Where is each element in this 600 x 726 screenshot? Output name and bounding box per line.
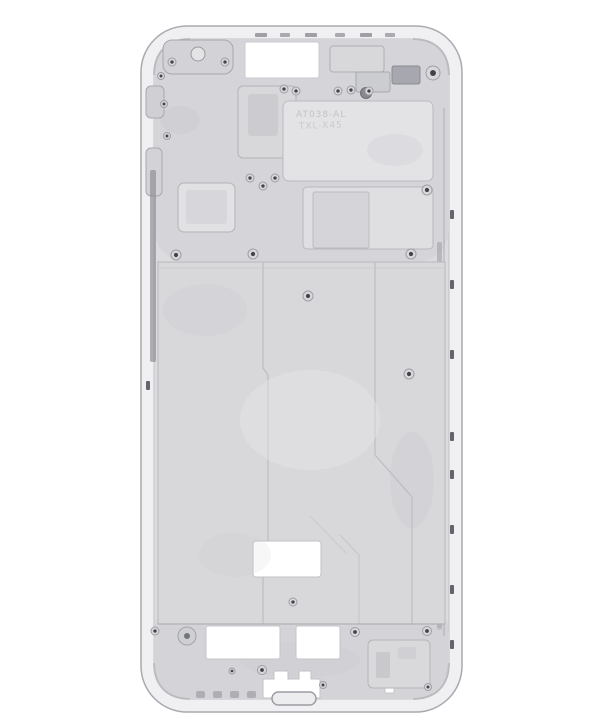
charging-port-slot xyxy=(272,692,316,705)
screw-boss xyxy=(168,58,176,66)
screw-boss xyxy=(365,87,373,95)
top-rail-notch xyxy=(280,33,290,37)
screw-boss xyxy=(258,666,267,675)
sensor-block xyxy=(330,46,384,72)
mid-top-block-recess xyxy=(248,94,278,136)
screw-boss xyxy=(158,73,165,80)
screw-boss xyxy=(289,598,297,606)
right-edge-slot xyxy=(450,432,454,441)
bottom-rail-foot xyxy=(213,691,222,698)
right-edge-slot xyxy=(450,350,454,359)
top-rail-notch xyxy=(305,33,317,37)
top-rail-notch xyxy=(255,33,267,37)
product-photo: AT038-ALTXL-X45 xyxy=(0,0,600,726)
right-edge-slot xyxy=(450,470,454,479)
right-edge-slot xyxy=(450,525,454,534)
dark-connector-block xyxy=(392,66,420,84)
stain xyxy=(199,533,271,577)
bottom-right-cutout xyxy=(296,626,340,659)
screw-boss xyxy=(334,87,342,95)
stain xyxy=(163,284,247,336)
screw-boss xyxy=(221,58,229,66)
top-rail-notch xyxy=(385,33,395,37)
earpiece-boss xyxy=(191,47,205,61)
top-rail-notch xyxy=(360,33,372,37)
right-edge-slot xyxy=(450,280,454,289)
stain xyxy=(160,106,200,134)
midframe-svg: AT038-ALTXL-X45 xyxy=(0,0,600,726)
top-center-cutout xyxy=(245,42,319,78)
screw-boss xyxy=(422,185,432,195)
screw-boss xyxy=(271,174,279,182)
engraving-line1: AT038-AL xyxy=(296,110,346,120)
screw-boss xyxy=(151,627,159,635)
right-edge-slot xyxy=(450,585,454,594)
screw-boss xyxy=(303,291,313,301)
screw-boss xyxy=(171,250,181,260)
left-square-pad-recess xyxy=(186,190,227,224)
screw-boss xyxy=(292,87,300,95)
screw-boss xyxy=(259,182,267,190)
screw-boss xyxy=(347,86,355,94)
left-edge-slot xyxy=(146,381,150,390)
left-side-groove xyxy=(150,170,156,362)
screw-boss xyxy=(404,369,414,379)
engraving-line2: TXL-X45 xyxy=(298,120,343,132)
bottom-right-pad-recess xyxy=(376,652,390,678)
highlight-sheen xyxy=(240,370,380,470)
screw-boss xyxy=(425,684,432,691)
screw-boss xyxy=(320,682,327,689)
bottom-rail-foot xyxy=(247,691,256,698)
right-edge-slot xyxy=(450,640,454,649)
screw-boss xyxy=(406,249,416,259)
bottom-right-pad-recess xyxy=(398,647,416,659)
bottom-rail-foot xyxy=(230,691,239,698)
stain xyxy=(367,134,423,166)
screw-boss xyxy=(426,66,440,80)
bottom-rail-foot xyxy=(196,691,205,698)
screw-boss xyxy=(280,85,288,93)
screw-boss xyxy=(423,627,432,636)
screw-boss xyxy=(246,174,254,182)
top-rail-notch xyxy=(335,33,345,37)
right-edge-slot xyxy=(450,210,454,219)
screw-boss xyxy=(248,249,258,259)
screw-boss xyxy=(229,668,235,674)
bottom-left-cutout xyxy=(206,626,280,659)
board-plate-recess xyxy=(313,192,369,248)
screw-boss xyxy=(161,101,168,108)
stain xyxy=(390,432,434,528)
screw-boss xyxy=(164,133,171,140)
screw-boss xyxy=(351,628,360,637)
bottom-left-boss-hole xyxy=(184,633,190,639)
